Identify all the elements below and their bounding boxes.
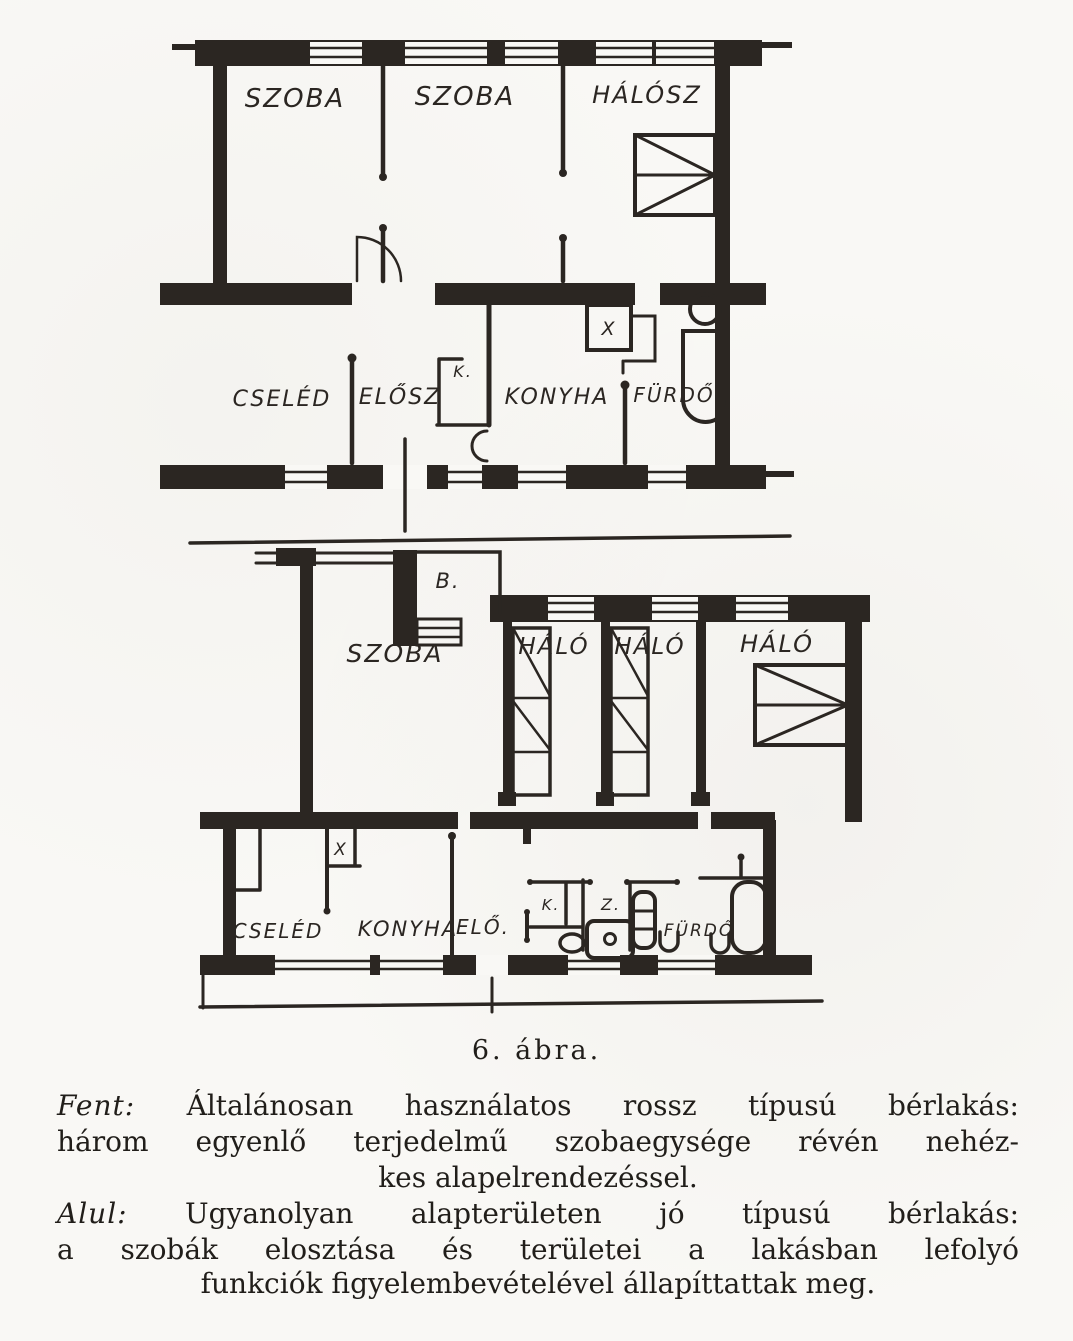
- room-label-halo2: HÁLÓ: [614, 632, 685, 660]
- room-label-elo: ELŐ.: [456, 915, 510, 939]
- room-label-szoba2: SZOBA: [415, 82, 515, 112]
- bathtub: [732, 882, 766, 953]
- room-label-konyha: KONYHA: [505, 385, 610, 410]
- door-arc-k-closet: [472, 431, 487, 461]
- room-label-cseled: CSELÉD: [233, 386, 332, 412]
- room-label-halosz: HÁLÓSZ: [592, 79, 702, 109]
- caption-alul-line1-text: Ugyanolyan alapterületen jó típusú bérla…: [185, 1197, 1019, 1230]
- caption-alul-line3-text: funkciók figyelembevételével állapíttatt…: [201, 1267, 876, 1300]
- interior-wall-middle-center: [435, 283, 635, 305]
- caption-alul-word: Alul:: [57, 1197, 128, 1230]
- door-arc-elosz: [357, 237, 401, 281]
- caption-alul-line2-text: a szobák elosztása és területei a lakásb…: [57, 1233, 1019, 1266]
- caption-alul-line3: funkciók figyelembevételével állapíttatt…: [57, 1266, 1019, 1302]
- caption-alul-line1: Alul: Ugyanolyan alapterületen jó típusú…: [57, 1196, 1019, 1232]
- bed-halo3: [755, 665, 848, 745]
- partition-foot-3: [691, 792, 710, 806]
- cseled-closet-walls: [235, 829, 260, 890]
- room-label-halo1: HÁLÓ: [518, 632, 589, 660]
- kitchen-basin: [560, 934, 584, 952]
- bed-halosz: [635, 135, 715, 215]
- caption-fent-line3: kes alapelrendezéssel.: [57, 1160, 1019, 1196]
- room-label-wc: X: [333, 840, 348, 860]
- exterior-wall-left: [213, 66, 227, 287]
- room-label-k-closet: K.: [542, 896, 561, 914]
- caption-alul-line2: a szobák elosztása és területei a lakásb…: [57, 1232, 1019, 1268]
- room-label-cseled: CSELÉD: [233, 919, 324, 943]
- kitchen-range: [633, 892, 655, 948]
- figure-number-label: 6. ábra.: [0, 1035, 1073, 1066]
- room-label-konyha: KONYHA: [358, 917, 458, 941]
- wc-box: [587, 305, 655, 373]
- floor-plan-top: SZOBA SZOBA HÁLÓSZ CSELÉD ELŐSZ K. KONYH…: [150, 25, 800, 555]
- caption-fent-word: Fent:: [57, 1089, 135, 1122]
- floor-plan-bottom: B. SZOBA HÁLÓ HÁLÓ HÁLÓ X CSELÉD KONYHA …: [180, 540, 880, 1025]
- caption-fent-line2-text: három egyenlő terjedelmű szobaegysége ré…: [57, 1125, 1019, 1158]
- kitchen-stove: [587, 921, 633, 958]
- partition-szoba-halo1: [503, 622, 512, 800]
- wall-extension-left: [172, 44, 198, 50]
- balcony-wall: [393, 550, 417, 646]
- exterior-wall-left: [300, 564, 313, 814]
- door-post-elo: [523, 829, 531, 844]
- room-label-halo3: HÁLÓ: [740, 628, 814, 658]
- partition-halo1-halo2: [601, 622, 610, 800]
- interior-wall-middle-left: [200, 812, 458, 829]
- scanned-page: SZOBA SZOBA HÁLÓSZ CSELÉD ELŐSZ K. KONYH…: [0, 0, 1073, 1341]
- interior-wall-middle-center: [470, 812, 698, 829]
- bottom-plan-fixtures: [513, 628, 848, 958]
- room-label-balcony: B.: [435, 569, 460, 593]
- room-label-k-closet: K.: [453, 362, 473, 381]
- wall-extension-right: [760, 42, 792, 48]
- partition-halo2-halo3: [696, 622, 706, 800]
- caption-fent-line1-text: Általánosan használatos rossz típusú bér…: [187, 1089, 1019, 1122]
- exterior-wall-left-lower: [223, 829, 236, 969]
- room-label-wc: X: [600, 318, 616, 340]
- ground-line: [200, 1001, 822, 1007]
- bottom-plan-labels: B. SZOBA HÁLÓ HÁLÓ HÁLÓ X CSELÉD KONYHA …: [233, 569, 814, 943]
- caption-fent-line1: Fent: Általánosan használatos rossz típu…: [57, 1088, 1019, 1124]
- room-label-szoba1: SZOBA: [245, 84, 345, 114]
- interior-wall-middle-left: [160, 283, 352, 305]
- caption-fent-line3-text: kes alapelrendezéssel.: [378, 1161, 698, 1194]
- room-label-elosz: ELŐSZ: [359, 384, 442, 410]
- room-label-z-closet: Z.: [600, 895, 621, 914]
- wall-extension-bottom-right: [766, 471, 794, 477]
- room-label-furdo: FÜRDŐ: [633, 383, 714, 407]
- room-label-szoba: SZOBA: [347, 639, 444, 668]
- bathroom-wall: [700, 858, 763, 878]
- room-label-furdo: FÜRDŐ: [664, 919, 735, 941]
- caption-fent-line2: három egyenlő terjedelmű szobaegysége ré…: [57, 1124, 1019, 1160]
